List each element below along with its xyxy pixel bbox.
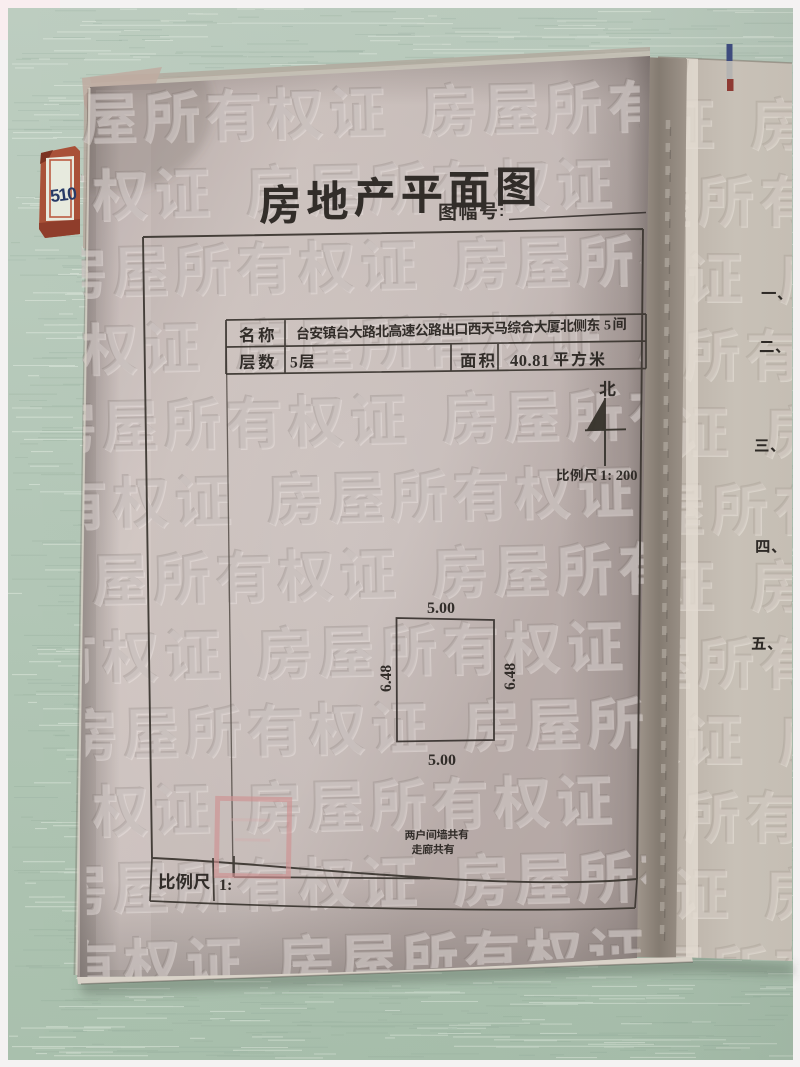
svg-text:6.48: 6.48 <box>378 665 395 692</box>
svg-text:5: 5 <box>604 319 611 334</box>
svg-text::: : <box>499 203 504 220</box>
svg-text:510: 510 <box>49 183 78 206</box>
svg-text:1:: 1: <box>219 877 232 894</box>
svg-text:1: 200: 1: 200 <box>600 468 637 484</box>
svg-text:5.00: 5.00 <box>427 600 455 617</box>
svg-text:5: 5 <box>290 355 298 372</box>
svg-text:6.48: 6.48 <box>502 663 519 690</box>
svg-text:5.00: 5.00 <box>428 752 456 769</box>
svg-text:40.81: 40.81 <box>510 351 550 370</box>
